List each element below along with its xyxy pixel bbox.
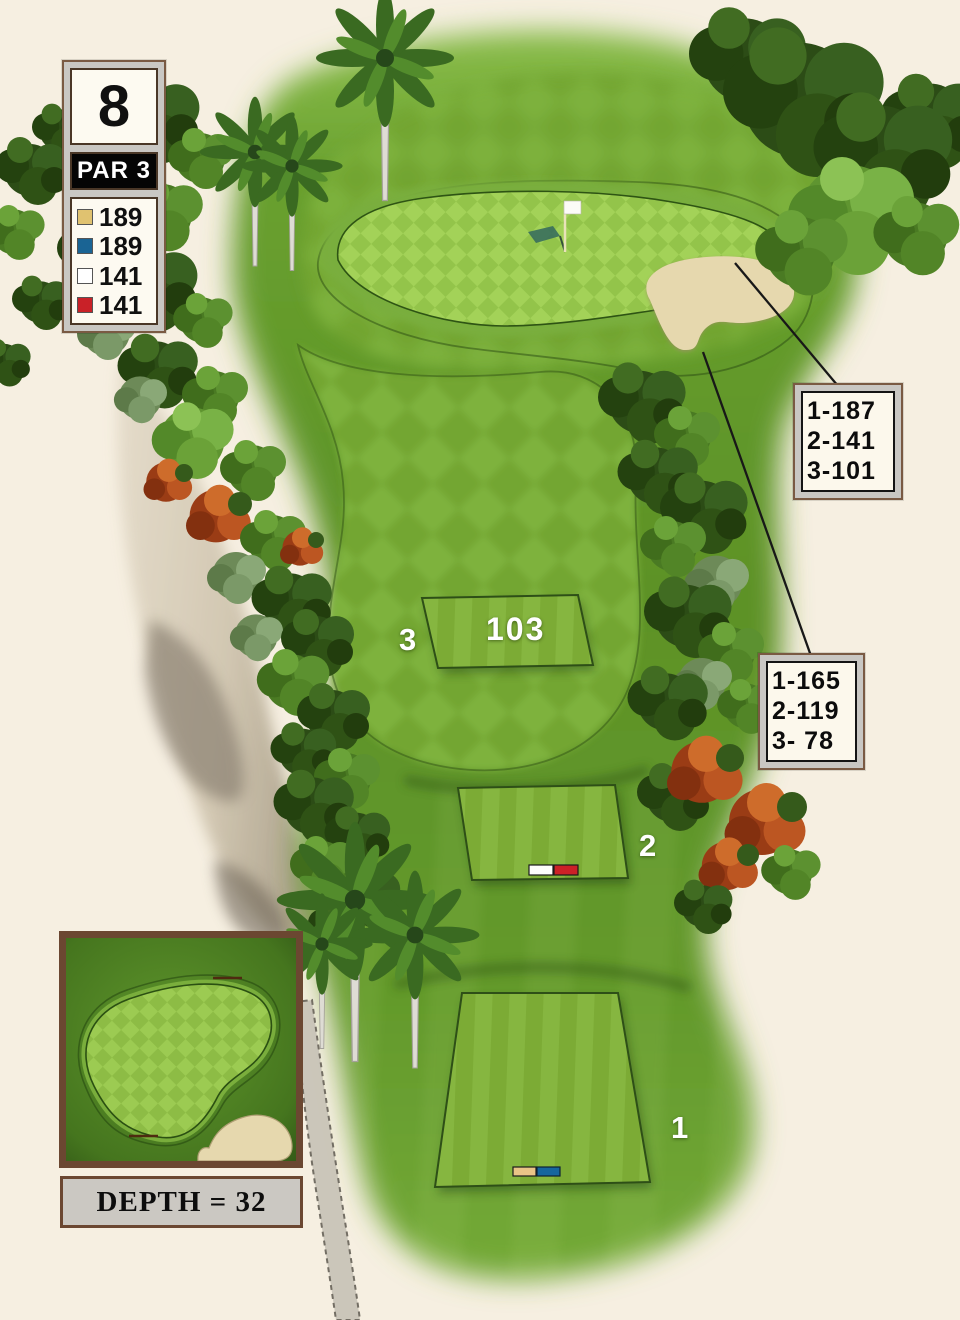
- red-tee-yardage: 141: [99, 292, 142, 318]
- white-tee-swatch-icon: [77, 268, 93, 284]
- callout-line: 1-165: [772, 666, 851, 696]
- tee-1-label: 1: [671, 1110, 688, 1146]
- legend-row-blue: 189: [77, 233, 151, 259]
- gold-tee-swatch-icon: [77, 209, 93, 225]
- tee-3-label: 3: [399, 622, 416, 658]
- green-depth-box: DEPTH = 32: [60, 1176, 303, 1228]
- distance-callout-lower-inner: 1-165 2-119 3- 78: [766, 661, 857, 762]
- green-inset-illustration: [66, 938, 296, 1161]
- blue-tee-swatch-icon: [77, 238, 93, 254]
- distance-callout-upper-inner: 1-187 2-141 3-101: [801, 391, 895, 492]
- white-tee-yardage: 141: [99, 263, 142, 289]
- legend-row-white: 141: [77, 263, 151, 289]
- par-label: PAR 3: [70, 152, 158, 190]
- tee-legend: 189 189 141 141: [70, 197, 158, 325]
- callout-line: 3-101: [807, 456, 889, 486]
- tee-marker-blue-icon: [537, 1167, 560, 1176]
- flag-cloth: [564, 201, 581, 214]
- tee-box-1: [435, 993, 653, 1193]
- hole-info-panel: 8 PAR 3 189 189 141 141: [62, 60, 166, 333]
- tee-marker-red-icon: [554, 865, 578, 875]
- distance-callout-upper: 1-187 2-141 3-101: [793, 383, 903, 500]
- callout-line: 2-141: [807, 426, 889, 456]
- red-tee-swatch-icon: [77, 297, 93, 313]
- tee-3-distance: 103: [486, 611, 545, 648]
- tee-marker-white-icon: [529, 865, 553, 875]
- callout-line: 2-119: [772, 696, 851, 726]
- legend-row-red: 141: [77, 292, 151, 318]
- blue-tee-yardage: 189: [99, 233, 142, 259]
- tee-marker-gold-icon: [513, 1167, 536, 1176]
- callout-line: 1-187: [807, 396, 889, 426]
- stage: 8 PAR 3 189 189 141 141 1-187 2-141 3-10…: [0, 0, 960, 1320]
- green-detail-inset: [59, 931, 303, 1168]
- tee-2-label: 2: [639, 828, 656, 864]
- hole-number: 8: [70, 68, 158, 145]
- callout-line: 3- 78: [772, 726, 851, 756]
- gold-tee-yardage: 189: [99, 204, 142, 230]
- legend-row-gold: 189: [77, 204, 151, 230]
- distance-callout-lower: 1-165 2-119 3- 78: [758, 653, 865, 770]
